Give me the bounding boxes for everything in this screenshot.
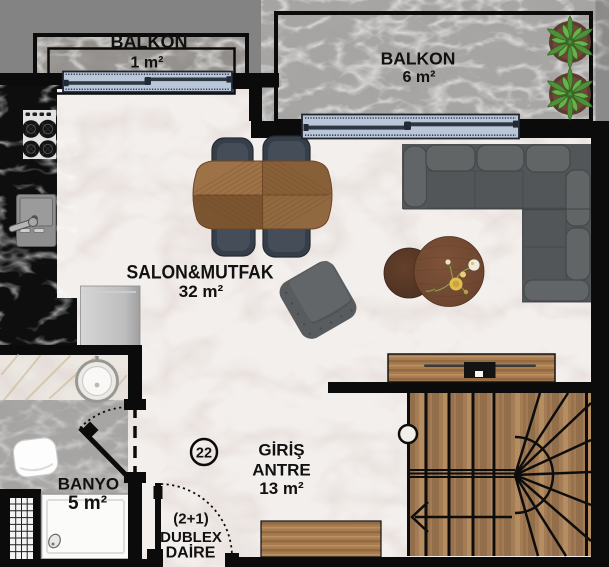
svg-text:SALON&MUTFAK: SALON&MUTFAK xyxy=(127,263,274,284)
svg-text:BANYO: BANYO xyxy=(58,475,119,494)
svg-text:5 m²: 5 m² xyxy=(68,493,107,514)
svg-text:32 m²: 32 m² xyxy=(179,282,224,301)
svg-text:1 m²: 1 m² xyxy=(131,55,164,72)
svg-text:13 m²: 13 m² xyxy=(259,479,304,498)
svg-text:(2+1): (2+1) xyxy=(173,511,208,528)
svg-text:GİRİŞ: GİRİŞ xyxy=(258,441,304,460)
svg-text:DAİRE: DAİRE xyxy=(166,544,216,562)
svg-text:DUBLEX: DUBLEX xyxy=(160,529,222,546)
svg-text:BALKON: BALKON xyxy=(381,49,456,69)
svg-text:6 m²: 6 m² xyxy=(403,69,436,86)
svg-text:BALKON: BALKON xyxy=(111,32,188,52)
svg-text:22: 22 xyxy=(196,446,212,462)
svg-text:ANTRE: ANTRE xyxy=(252,460,311,479)
